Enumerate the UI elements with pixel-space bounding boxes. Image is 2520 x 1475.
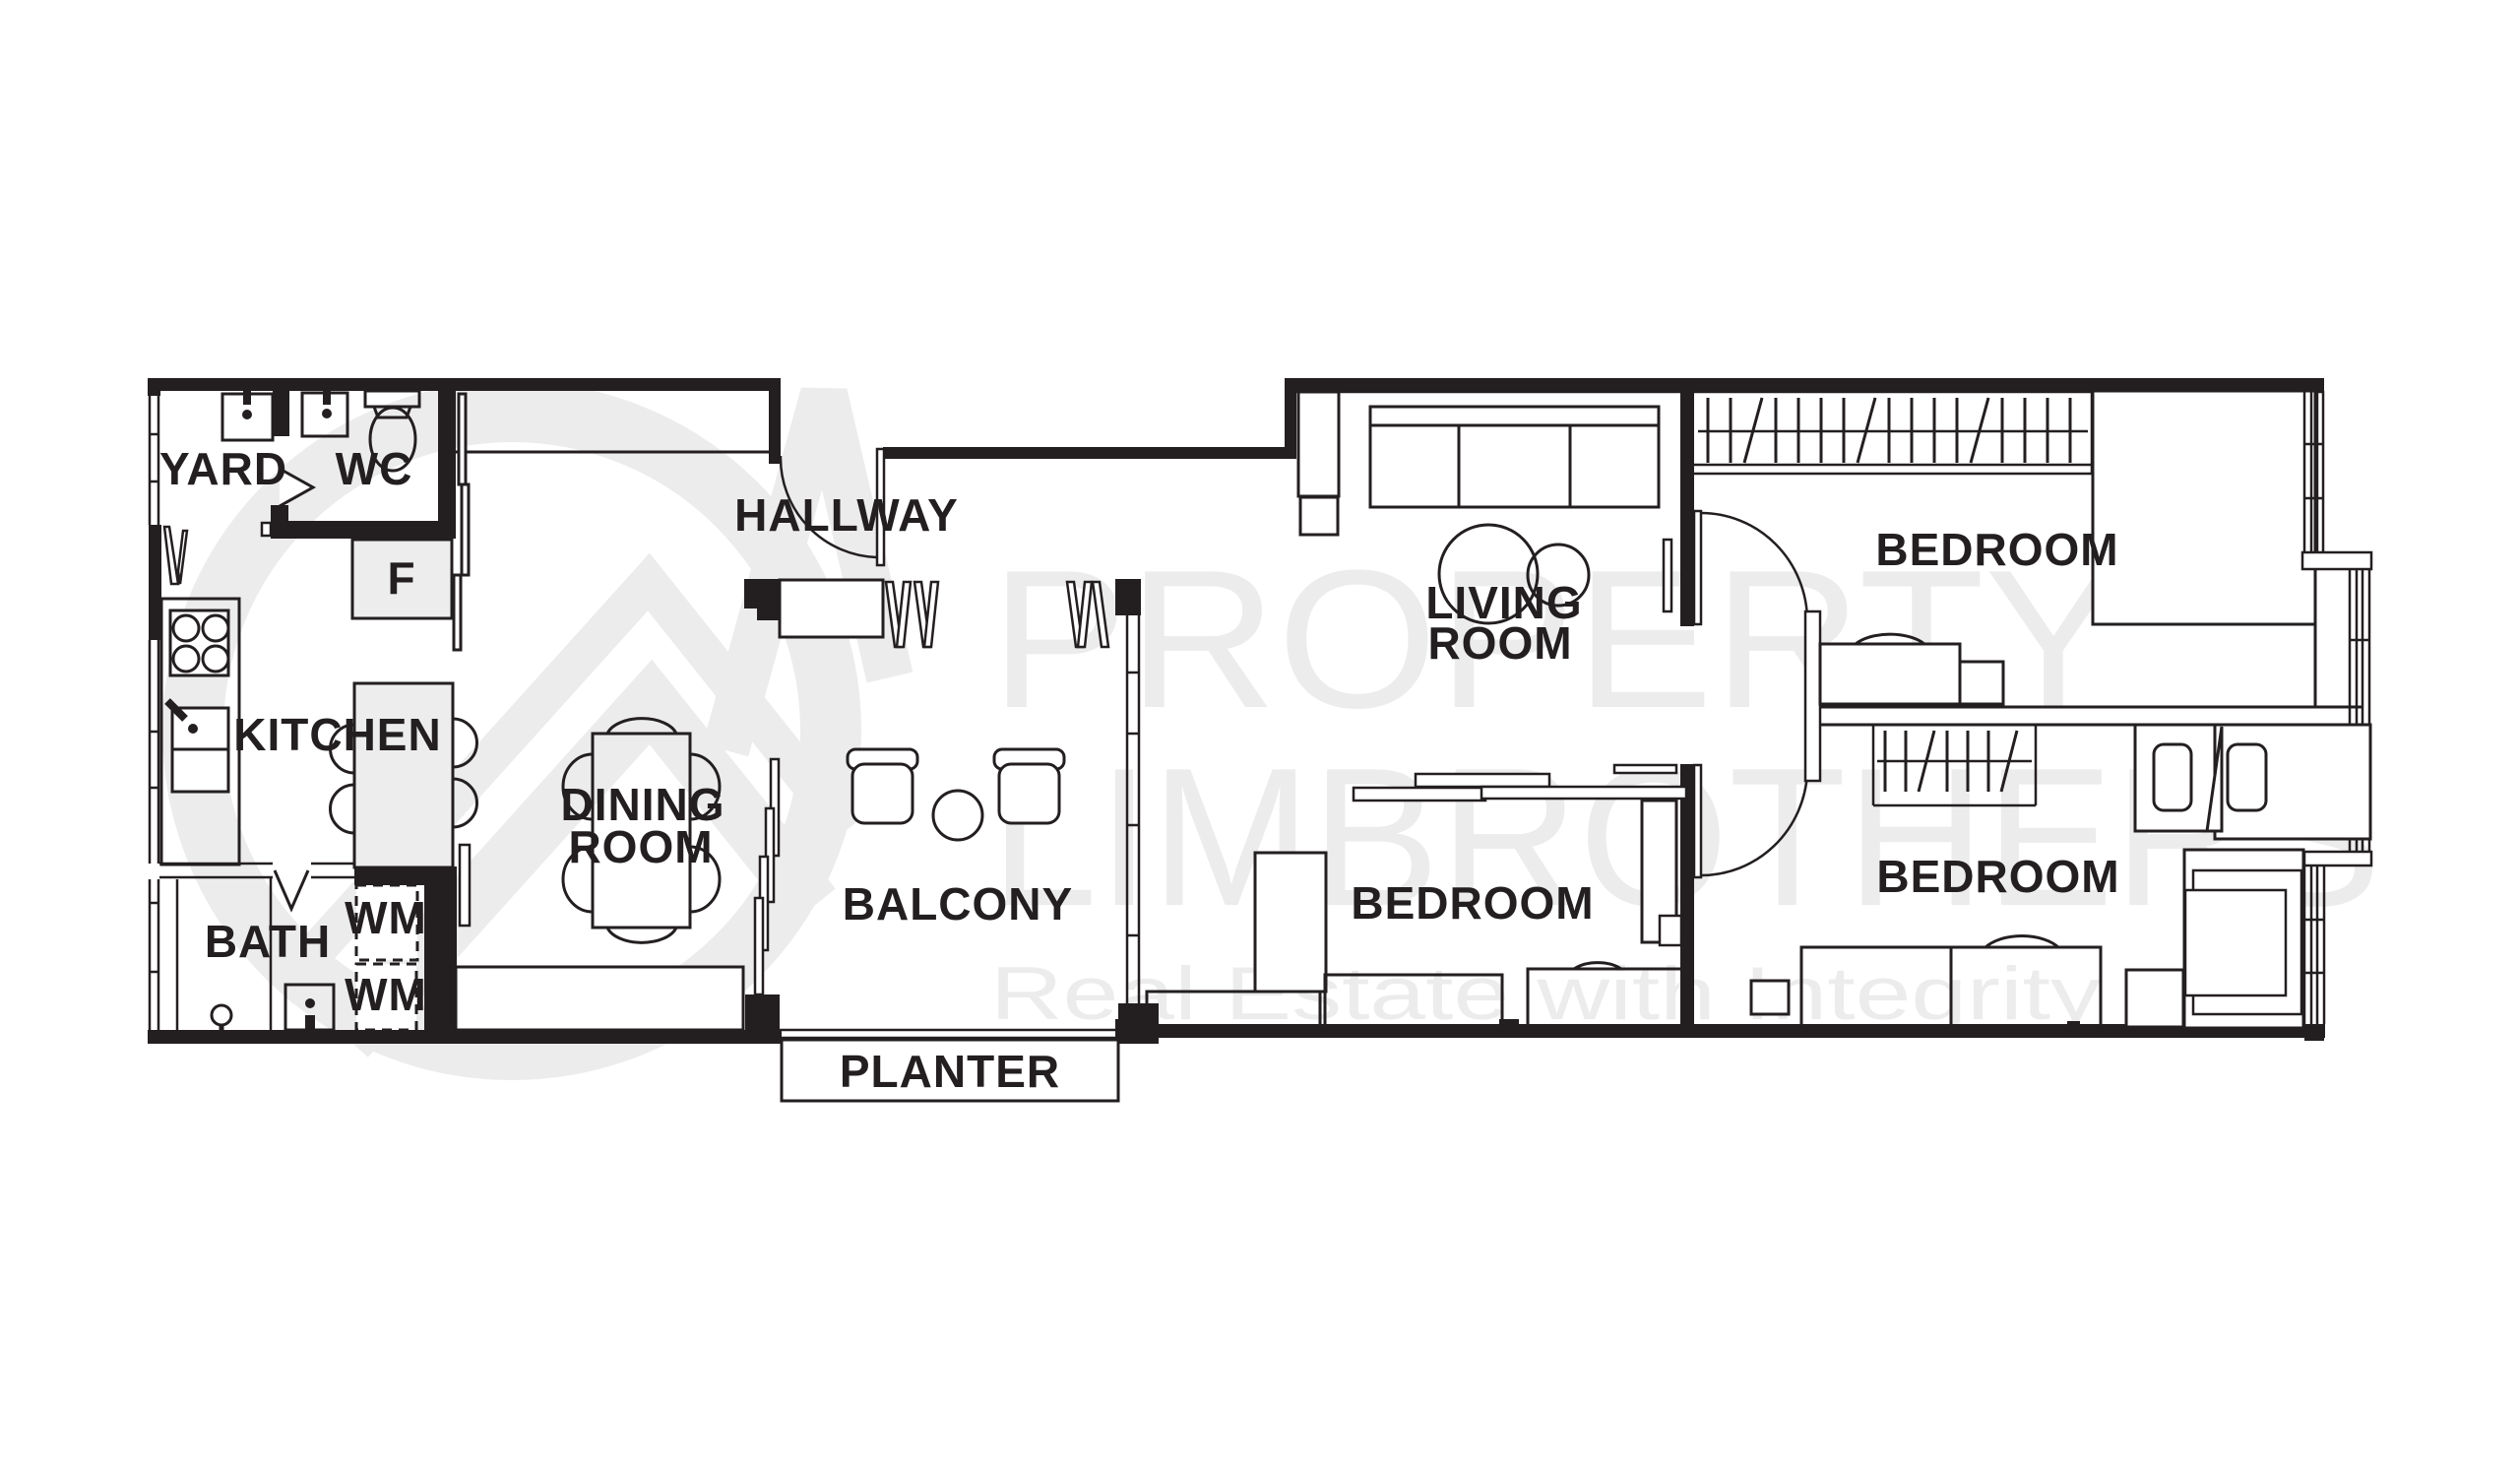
svg-text:ROOM: ROOM [1427, 617, 1572, 669]
svg-text:BATH: BATH [205, 916, 331, 967]
svg-text:HALLWAY: HALLWAY [734, 489, 959, 541]
svg-text:KITCHEN: KITCHEN [233, 709, 441, 760]
svg-text:BEDROOM: BEDROOM [1351, 877, 1594, 929]
svg-text:WM: WM [345, 969, 427, 1020]
svg-text:PLANTER: PLANTER [840, 1046, 1060, 1097]
svg-text:ROOM: ROOM [568, 821, 713, 872]
svg-text:BEDROOM: BEDROOM [1875, 524, 2118, 575]
svg-text:F: F [387, 552, 415, 604]
svg-text:BEDROOM: BEDROOM [1876, 851, 2119, 902]
svg-text:BALCONY: BALCONY [843, 878, 1073, 930]
svg-text:WC: WC [336, 443, 413, 494]
svg-text:WM: WM [345, 892, 427, 943]
svg-text:YARD: YARD [159, 443, 287, 494]
